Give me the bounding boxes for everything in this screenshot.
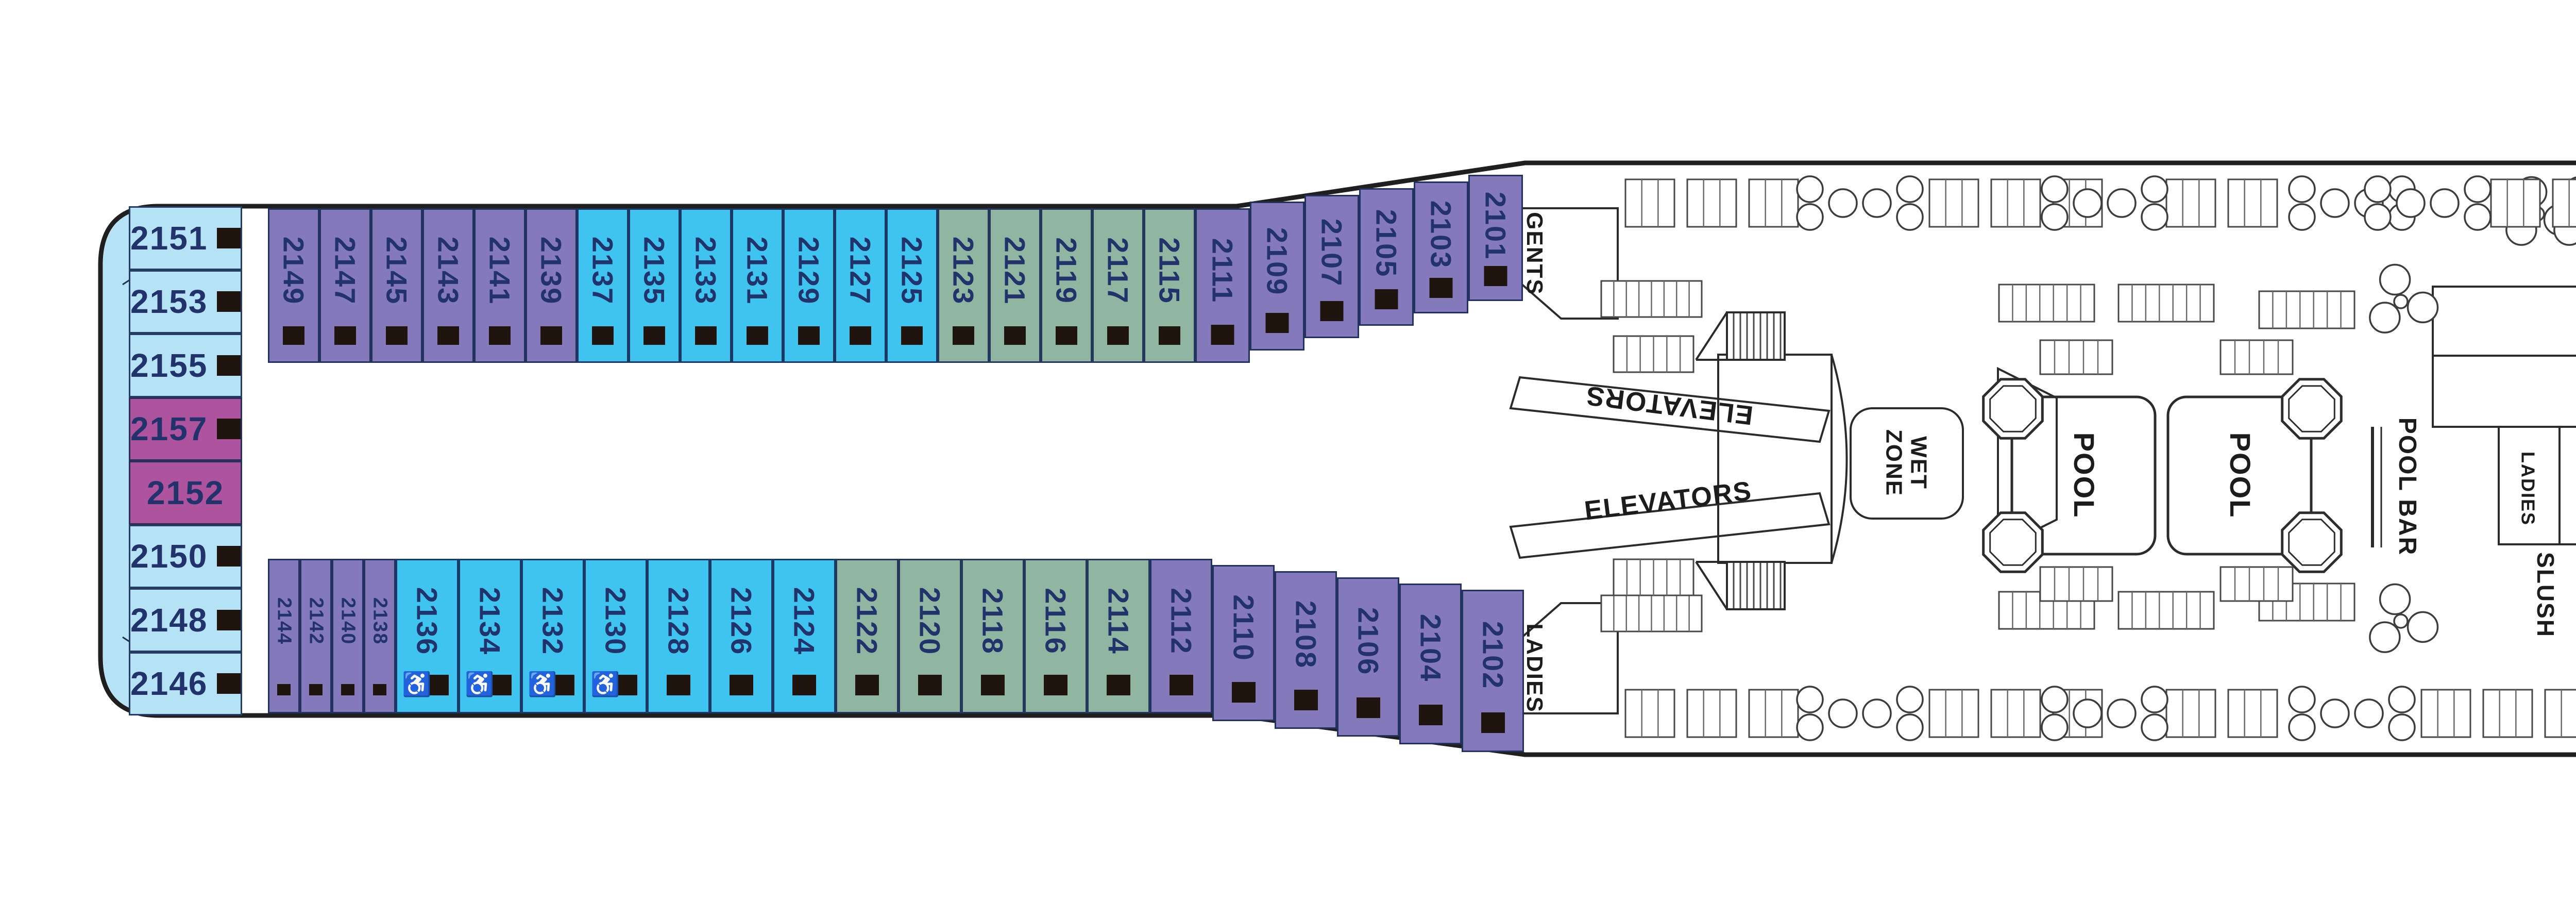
bed-square-icon [792, 675, 816, 695]
cabin-2151[interactable]: 2151 [129, 206, 242, 270]
bed-square-icon [489, 326, 511, 345]
lounger-icon [2221, 567, 2293, 601]
cabin-2101[interactable]: 2101 [1468, 175, 1523, 301]
bed-square-icon [1357, 697, 1380, 718]
cabin-number: 2147 [329, 236, 362, 305]
whirlpool-icon [2282, 379, 2342, 439]
cabin-number: 2140 [337, 597, 359, 645]
lounger-icon [2491, 179, 2540, 227]
whirlpool-icon [1984, 513, 2043, 572]
lounger-icon [1749, 179, 1798, 227]
bed-square-icon [730, 675, 753, 695]
cabin-number: 2102 [1476, 621, 1510, 689]
cabin-number: 2119 [1050, 237, 1083, 304]
cabin-2137[interactable]: 2137 [577, 208, 629, 363]
cabin-number: 2109 [1261, 227, 1294, 296]
cabin-2126[interactable]: 2126 [710, 559, 773, 713]
cabin-2104[interactable]: 2104 [1399, 584, 1462, 744]
cabin-2143[interactable]: 2143 [422, 208, 474, 363]
cabin-2149[interactable]: 2149 [268, 208, 319, 363]
lounger-icon [2228, 179, 2277, 227]
cabin-number: 2112 [1164, 588, 1198, 655]
bed-square-icon [386, 326, 408, 345]
cabin-2127[interactable]: 2127 [835, 208, 886, 363]
cabin-2121[interactable]: 2121 [989, 208, 1041, 363]
whirlpool-icon [1984, 379, 2043, 439]
bed-square-icon [1004, 326, 1026, 345]
bed-square-icon [217, 546, 241, 567]
cabin-number: 2146 [130, 664, 208, 703]
bed-square-icon [1107, 326, 1129, 345]
lounger-icon [1601, 281, 1702, 317]
lounger-icon [1614, 559, 1693, 595]
bed-square-icon [667, 675, 690, 695]
cabin-2155[interactable]: 2155 [129, 334, 242, 397]
cabin-2117[interactable]: 2117 [1092, 208, 1144, 363]
bed-square-icon [437, 326, 459, 345]
cabin-number: 2105 [1370, 209, 1403, 278]
bed-square-icon [850, 326, 871, 345]
bed-square-icon [1211, 325, 1234, 345]
lounger-icon [1749, 690, 1798, 737]
bed-square-icon [747, 326, 768, 345]
cabin-number: 2124 [788, 587, 821, 655]
cabin-number: 2137 [586, 236, 620, 305]
cabin-2116[interactable]: 2116 [1024, 559, 1087, 713]
cabin-2119[interactable]: 2119 [1041, 208, 1092, 363]
lounger-icon [2553, 179, 2576, 227]
bed-square-icon [855, 675, 879, 695]
cabin-number: 2116 [1039, 588, 1073, 655]
cabin-2114[interactable]: 2114 [1087, 559, 1150, 713]
cabin-2139[interactable]: 2139 [526, 208, 577, 363]
cabin-number: 2138 [369, 597, 391, 645]
bed-square-icon [1107, 675, 1130, 695]
bed-square-icon [981, 675, 1005, 695]
cabin-2134[interactable]: 2134♿ [459, 559, 521, 713]
bed-square-icon [695, 326, 717, 345]
bed-square-icon [277, 684, 291, 695]
cabin-number: 2150 [130, 537, 208, 575]
lounger-icon [1991, 690, 2040, 737]
cabin-number: 2120 [913, 587, 947, 655]
bed-square-icon [953, 326, 974, 345]
lounger-icon [2545, 690, 2576, 737]
bed-square-icon [309, 684, 323, 695]
cabin-number: 2126 [725, 587, 758, 655]
bed-square-icon [901, 326, 923, 345]
deck-plan: 2151215321552157215221502148214621492147… [0, 0, 2576, 916]
lounger-icon [1929, 690, 1978, 737]
wheelchair-accessible-icon: ♿ [465, 670, 494, 698]
cabin-number: 2121 [998, 236, 1032, 305]
lounger-icon [1687, 179, 1736, 227]
bed-square-icon [1159, 326, 1180, 345]
cabin-2109[interactable]: 2109 [1250, 202, 1304, 351]
lounger-icon [1687, 690, 1736, 737]
bed-square-icon [1430, 278, 1453, 298]
cabin-2125[interactable]: 2125 [886, 208, 938, 363]
lounger-icon [2119, 592, 2214, 629]
cabin-2120[interactable]: 2120 [899, 559, 961, 713]
bed-square-icon [334, 326, 356, 345]
deck-structure [0, 0, 2576, 916]
cabin-number: 2153 [130, 282, 208, 321]
cabin-2110[interactable]: 2110 [1212, 565, 1275, 721]
cabin-2135[interactable]: 2135 [629, 208, 680, 363]
cabin-number: 2128 [662, 587, 696, 655]
lounger-icon [1991, 179, 2040, 227]
wheelchair-accessible-icon: ♿ [402, 670, 431, 698]
lounger-icon [1999, 285, 2094, 322]
cabin-number: 2106 [1351, 607, 1385, 676]
cabin-number: 2134 [473, 587, 507, 655]
cabin-number: 2139 [535, 236, 568, 305]
cabin-number: 2155 [130, 346, 208, 385]
lounger-icon [2421, 690, 2470, 737]
cabin-number: 2144 [273, 597, 295, 645]
lounger-icon [1625, 179, 1674, 227]
bed-square-icon [1419, 705, 1443, 725]
bed-square-icon [283, 326, 304, 345]
cabin-2128[interactable]: 2128 [647, 559, 710, 713]
bed-square-icon [643, 326, 665, 345]
cabin-2157[interactable]: 2157 [129, 397, 242, 461]
bed-square-icon [217, 673, 241, 694]
cabin-number: 2145 [380, 236, 414, 305]
cabin-number: 2151 [130, 219, 208, 257]
cabin-2111[interactable]: 2111 [1195, 208, 1250, 363]
bed-square-icon [918, 675, 942, 695]
cabin-2150[interactable]: 2150 [129, 525, 242, 589]
bed-square-icon [217, 419, 241, 439]
bed-square-icon [1481, 712, 1505, 733]
cabin-number: 2114 [1102, 588, 1136, 655]
bed-square-icon [540, 326, 562, 345]
cabin-2122[interactable]: 2122 [836, 559, 899, 713]
wheelchair-accessible-icon: ♿ [528, 670, 557, 698]
lounger-icon [2228, 690, 2277, 737]
bed-square-icon [217, 228, 241, 248]
cabin-number: 2157 [130, 410, 208, 448]
lounger-icon [2040, 340, 2112, 374]
cabin-number: 2143 [432, 236, 465, 305]
wheelchair-accessible-icon: ♿ [590, 670, 620, 698]
cabin-number: 2127 [844, 236, 877, 305]
lounger-icon [2483, 690, 2532, 737]
cabin-number: 2141 [483, 236, 517, 305]
cabin-number: 2125 [895, 236, 929, 305]
cabin-number: 2107 [1315, 219, 1349, 287]
cabin-2102[interactable]: 2102 [1462, 590, 1524, 752]
cabin-2115[interactable]: 2115 [1144, 208, 1195, 363]
cabin-2138[interactable]: 2138 [364, 559, 396, 713]
cabin-2124[interactable]: 2124 [773, 559, 836, 713]
cabin-2147[interactable]: 2147 [319, 208, 371, 363]
cabin-number: 2118 [976, 588, 1010, 655]
cabin-2130[interactable]: 2130♿ [584, 559, 647, 713]
cabin-number: 2148 [130, 601, 208, 639]
cabin-2118[interactable]: 2118 [961, 559, 1024, 713]
lounger-icon [1929, 179, 1978, 227]
bed-square-icon [217, 610, 241, 630]
cabin-2112[interactable]: 2112 [1150, 559, 1212, 713]
cabin-2144[interactable]: 2144 [268, 559, 300, 713]
cabin-2105[interactable]: 2105 [1359, 188, 1414, 326]
cabin-2107[interactable]: 2107 [1304, 195, 1359, 338]
cabin-2140[interactable]: 2140 [332, 559, 364, 713]
bed-square-icon [592, 326, 614, 345]
cabin-2136[interactable]: 2136♿ [396, 559, 459, 713]
bed-square-icon [373, 684, 386, 695]
lounger-icon [1601, 595, 1702, 631]
lounger-icon [2119, 285, 2214, 322]
bed-square-icon [217, 355, 241, 376]
bed-square-icon [217, 291, 241, 312]
cabin-2106[interactable]: 2106 [1337, 577, 1399, 737]
lounger-icon [1614, 336, 1693, 372]
bed-square-icon [1320, 301, 1344, 321]
cabin-number: 2149 [277, 236, 311, 305]
cabin-number: 2103 [1425, 201, 1458, 269]
cabin-2146[interactable]: 2146 [129, 652, 242, 716]
cabin-number: 2132 [536, 587, 570, 655]
whirlpool-icon [2282, 513, 2342, 572]
lounger-icon [2166, 690, 2215, 737]
bed-square-icon [341, 684, 354, 695]
cabin-2123[interactable]: 2123 [938, 208, 989, 363]
lounger-icon [1625, 690, 1674, 737]
bed-square-icon [1232, 682, 1256, 703]
cabin-number: 2123 [947, 236, 980, 305]
cabin-number: 2135 [638, 236, 671, 305]
cabin-number: 2136 [411, 587, 444, 655]
cabin-number: 2122 [851, 587, 884, 655]
cabin-2103[interactable]: 2103 [1414, 181, 1468, 313]
cabin-number: 2101 [1479, 191, 1513, 260]
cabin-2108[interactable]: 2108 [1275, 571, 1337, 729]
lounger-icon [2221, 340, 2293, 374]
lounger-icon [2040, 567, 2112, 601]
bed-square-icon [1044, 675, 1067, 695]
cabin-2152[interactable]: 2152 [129, 461, 242, 525]
bed-square-icon [1294, 690, 1318, 710]
lounger-icon [2259, 291, 2354, 328]
bed-square-icon [1375, 289, 1398, 309]
cabin-number: 2115 [1153, 237, 1187, 304]
cabin-number: 2129 [792, 236, 826, 305]
cabin-2133[interactable]: 2133 [680, 208, 732, 363]
cabin-2142[interactable]: 2142 [300, 559, 332, 713]
cabin-2132[interactable]: 2132♿ [521, 559, 584, 713]
bed-square-icon [1484, 266, 1507, 286]
bed-square-icon [1266, 313, 1289, 333]
cabin-2145[interactable]: 2145 [371, 208, 422, 363]
cabin-number: 2111 [1206, 238, 1240, 303]
lounger-icon [2166, 179, 2215, 227]
cabin-2148[interactable]: 2148 [129, 588, 242, 652]
cabin-number: 2110 [1227, 594, 1260, 661]
cabin-number: 2104 [1414, 614, 1447, 682]
cabin-number: 2152 [147, 474, 224, 512]
cabin-number: 2133 [689, 236, 723, 305]
cabin-number: 2131 [741, 236, 774, 305]
cabin-number: 2117 [1101, 237, 1135, 304]
cabin-2131[interactable]: 2131 [732, 208, 783, 363]
bed-square-icon [798, 326, 820, 345]
bed-square-icon [1056, 326, 1077, 345]
cabin-2141[interactable]: 2141 [474, 208, 526, 363]
cabin-2153[interactable]: 2153 [129, 270, 242, 334]
cabin-number: 2130 [599, 587, 633, 655]
bed-square-icon [1170, 675, 1193, 695]
cabin-2129[interactable]: 2129 [783, 208, 835, 363]
cabin-number: 2142 [305, 597, 327, 645]
cabin-number: 2108 [1289, 601, 1323, 669]
